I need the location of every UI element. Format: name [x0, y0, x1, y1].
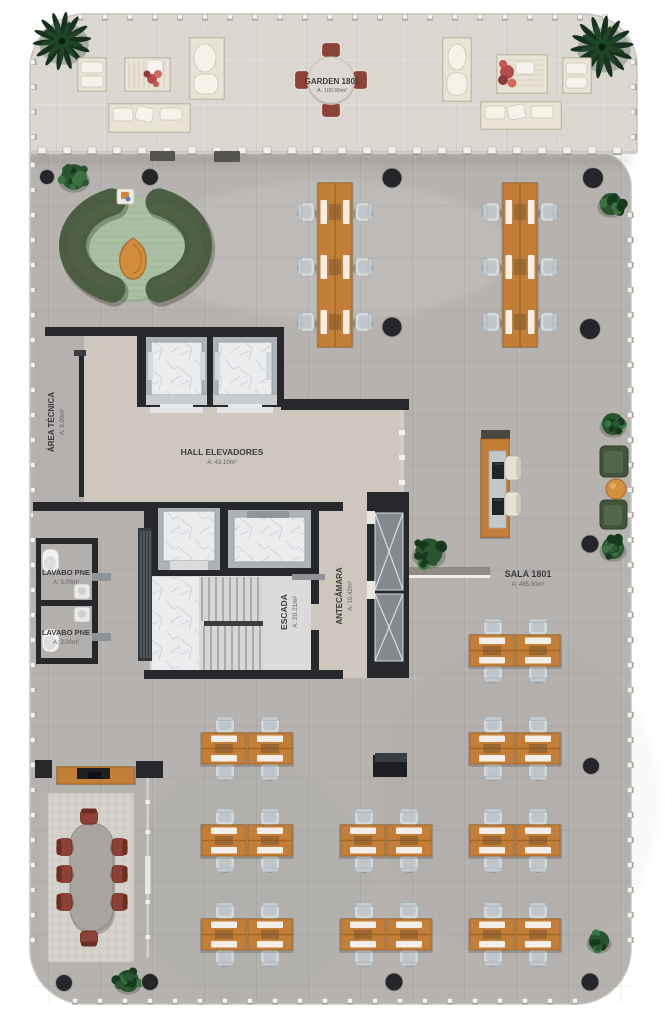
svg-text:A: 485.00m²: A: 485.00m² [512, 582, 545, 588]
svg-text:ÁREA TÉCNICA: ÁREA TÉCNICA [47, 392, 56, 452]
svg-text:A: 3.00m²: A: 3.00m² [53, 640, 79, 646]
svg-text:A: 20.21m²: A: 20.21m² [292, 595, 299, 628]
svg-text:LAVABO PNE: LAVABO PNE [42, 568, 90, 577]
svg-text:A: 43.10m²: A: 43.10m² [207, 460, 236, 466]
svg-text:HALL ELEVADORES: HALL ELEVADORES [181, 447, 264, 457]
svg-text:GARDEN 1801: GARDEN 1801 [305, 77, 360, 86]
svg-text:ESCADA: ESCADA [279, 594, 289, 630]
svg-text:A: 10.42m²: A: 10.42m² [348, 581, 354, 610]
svg-text:LAVABO PNE: LAVABO PNE [42, 628, 90, 637]
svg-text:SALA 1801: SALA 1801 [505, 569, 552, 579]
svg-text:ANTECÂMARA: ANTECÂMARA [335, 567, 344, 625]
svg-text:A: 9.90m²: A: 9.90m² [60, 409, 66, 435]
svg-text:A: 100.00m²: A: 100.00m² [317, 88, 347, 94]
svg-text:A: 3.00m²: A: 3.00m² [53, 580, 79, 586]
